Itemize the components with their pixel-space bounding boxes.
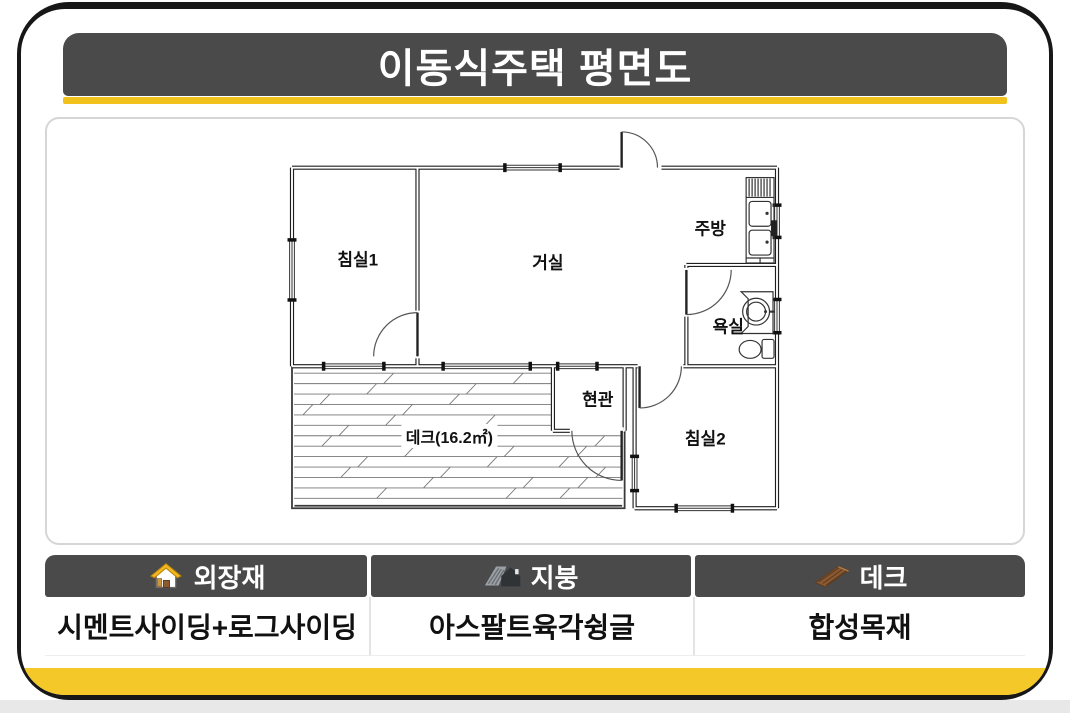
spec-col-roof: 지붕 아스팔트육각슁글 — [369, 555, 693, 656]
spec-header-label: 데크 — [860, 558, 908, 595]
room-label-bedroom2: 침실2 — [685, 424, 726, 449]
roof-icon — [484, 561, 522, 591]
room-label-bathroom: 욕실 — [713, 312, 744, 337]
spec-table: 외장재 시멘트사이딩+로그사이딩 지붕 아스팔트육각슁글 — [45, 555, 1025, 656]
spec-header-label: 지붕 — [531, 558, 579, 595]
spec-value-exterior: 시멘트사이딩+로그사이딩 — [45, 597, 369, 656]
spec-value-roof: 아스팔트육각슁글 — [369, 597, 693, 656]
room-label-deck: 데크(16.2㎡) — [402, 424, 497, 448]
bottom-accent-bar — [21, 668, 1049, 695]
spec-col-exterior: 외장재 시멘트사이딩+로그사이딩 — [45, 555, 369, 656]
title-bar: 이동식주택 평면도 — [63, 33, 1007, 96]
page-title: 이동식주택 평면도 — [378, 36, 693, 94]
spec-header-label: 외장재 — [194, 558, 266, 595]
room-label-kitchen: 주방 — [695, 215, 726, 240]
spec-header-exterior: 외장재 — [45, 555, 367, 597]
page-bottom-strip — [0, 700, 1070, 713]
poster-card: 이동식주택 평면도 — [21, 9, 1049, 695]
spec-value-deck: 합성목재 — [693, 597, 1025, 656]
room-label-bedroom1: 침실1 — [337, 246, 378, 271]
spec-col-deck: 데크 합성목재 — [693, 555, 1025, 656]
floor-plan-panel: 침실1거실주방욕실현관침실2데크(16.2㎡) — [45, 117, 1025, 545]
spec-header-roof: 지붕 — [371, 555, 691, 597]
room-labels: 침실1거실주방욕실현관침실2데크(16.2㎡) — [47, 119, 1023, 543]
room-label-entrance: 현관 — [582, 386, 613, 411]
deck-icon — [813, 561, 851, 591]
room-label-living-room: 거실 — [532, 248, 563, 273]
spec-header-deck: 데크 — [695, 555, 1025, 597]
house-icon — [147, 561, 185, 591]
title-underline-accent — [63, 97, 1007, 104]
